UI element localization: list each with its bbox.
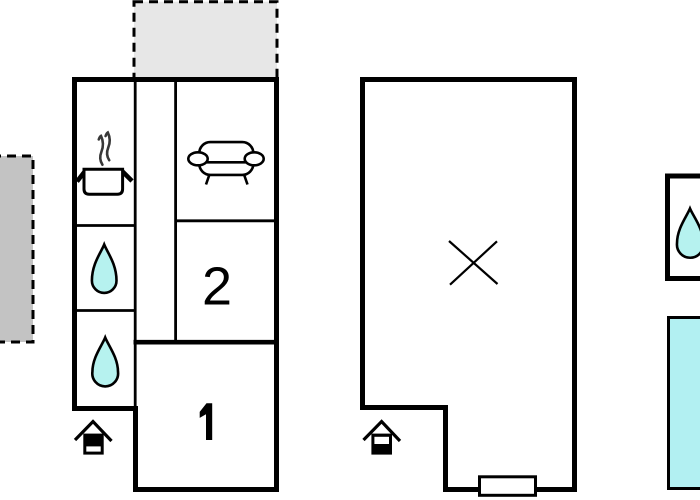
svg-text:2: 2 xyxy=(202,257,232,317)
